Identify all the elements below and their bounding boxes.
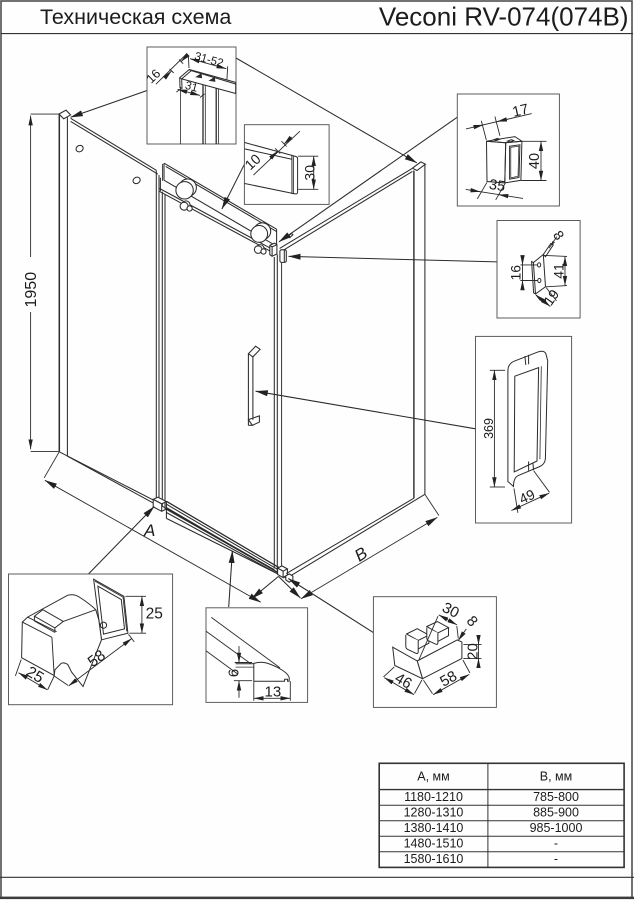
svg-text:20: 20 [465, 643, 482, 660]
svg-text:30: 30 [301, 165, 317, 181]
svg-text:1280-1310: 1280-1310 [404, 806, 464, 820]
svg-text:1380-1410: 1380-1410 [404, 821, 464, 835]
svg-text:1580-1610: 1580-1610 [404, 852, 464, 866]
svg-text:-: - [554, 852, 558, 866]
svg-text:6: 6 [225, 669, 242, 677]
svg-text:785-800: 785-800 [533, 790, 579, 804]
svg-text:A: A [143, 521, 155, 540]
svg-text:41: 41 [550, 263, 566, 279]
svg-text:35: 35 [488, 177, 506, 195]
svg-text:1950: 1950 [23, 272, 40, 308]
svg-text:1480-1510: 1480-1510 [404, 837, 464, 851]
svg-text:А, мм: А, мм [417, 770, 449, 784]
svg-text:25: 25 [146, 606, 163, 623]
svg-text:Veconi RV-074(074B): Veconi RV-074(074B) [379, 2, 629, 32]
svg-text:13: 13 [265, 684, 282, 701]
svg-text:Техническая схема: Техническая схема [40, 5, 231, 29]
svg-text:1180-1210: 1180-1210 [404, 790, 463, 804]
svg-text:В, мм: В, мм [540, 770, 572, 784]
svg-text:-: - [554, 837, 558, 851]
svg-text:985-1000: 985-1000 [530, 821, 583, 835]
svg-text:885-900: 885-900 [533, 806, 579, 820]
svg-text:40: 40 [527, 153, 543, 169]
svg-text:369: 369 [482, 418, 496, 439]
svg-text:16: 16 [507, 265, 523, 281]
